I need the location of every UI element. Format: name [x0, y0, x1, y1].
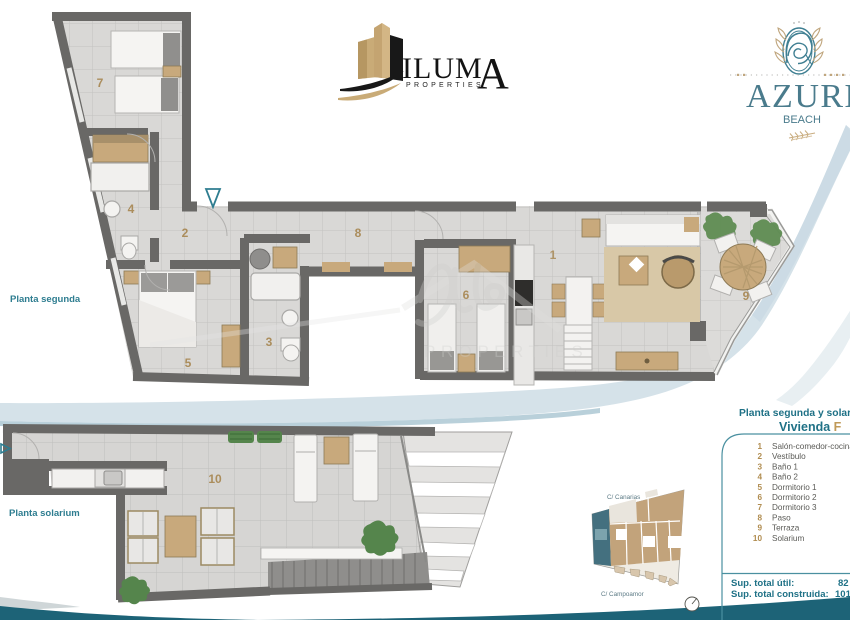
svg-text:8: 8	[757, 513, 762, 522]
svg-text:Vestíbulo: Vestíbulo	[772, 452, 806, 461]
svg-text:ILUM: ILUM	[402, 52, 483, 85]
svg-text:A: A	[477, 49, 509, 98]
svg-text:4: 4	[757, 473, 762, 482]
svg-text:Planta segunda: Planta segunda	[10, 294, 81, 305]
svg-text:Sup. total construida:: Sup. total construida:	[731, 589, 829, 600]
svg-text:101: 101	[835, 589, 850, 600]
svg-text:Dormitorio 1: Dormitorio 1	[772, 483, 817, 492]
svg-text:Baño 1: Baño 1	[772, 462, 798, 471]
svg-text:2: 2	[757, 452, 762, 461]
svg-text:Solarium: Solarium	[772, 534, 804, 543]
svg-text:8: 8	[355, 226, 362, 240]
svg-text:Baño 2: Baño 2	[772, 473, 798, 482]
svg-text:Planta solarium: Planta solarium	[9, 508, 80, 519]
svg-text:3: 3	[266, 335, 273, 349]
svg-text:10: 10	[208, 472, 222, 486]
svg-text:7: 7	[97, 76, 104, 90]
svg-text:4: 4	[128, 202, 135, 216]
svg-text:1: 1	[757, 442, 762, 451]
svg-text:BEACH: BEACH	[783, 114, 821, 126]
svg-text:6: 6	[757, 493, 762, 502]
svg-text:9: 9	[757, 524, 762, 533]
svg-text:Vivienda F: Vivienda F	[779, 420, 842, 434]
svg-text:Dormitorio 2: Dormitorio 2	[772, 493, 817, 502]
svg-text:5: 5	[185, 356, 192, 370]
svg-text:Planta segunda y solarium: Planta segunda y solarium	[739, 408, 850, 419]
svg-text:Salón-comedor-cocina: Salón-comedor-cocina	[772, 442, 850, 451]
svg-text:2: 2	[182, 226, 189, 240]
svg-text:3: 3	[757, 462, 762, 471]
svg-text:9: 9	[743, 289, 750, 303]
svg-text:82: 82	[838, 578, 849, 589]
svg-text:6: 6	[463, 288, 470, 302]
svg-text:Sup. total útil:: Sup. total útil:	[731, 578, 794, 589]
svg-text:AZURE: AZURE	[746, 78, 850, 115]
svg-text:PROPERTIES: PROPERTIES	[406, 82, 484, 89]
svg-text:Terraza: Terraza	[772, 524, 800, 533]
svg-text:PROPERTIES: PROPERTIES	[424, 342, 588, 361]
svg-text:1: 1	[550, 248, 557, 262]
svg-text:C/ Campoamor: C/ Campoamor	[601, 591, 644, 598]
svg-text:5: 5	[757, 483, 762, 492]
svg-text:10: 10	[753, 534, 763, 543]
svg-text:Paso: Paso	[772, 513, 791, 522]
svg-text:Dormitorio 3: Dormitorio 3	[772, 503, 817, 512]
svg-text:7: 7	[757, 503, 762, 512]
svg-text:C/ Canarias: C/ Canarias	[607, 494, 640, 501]
